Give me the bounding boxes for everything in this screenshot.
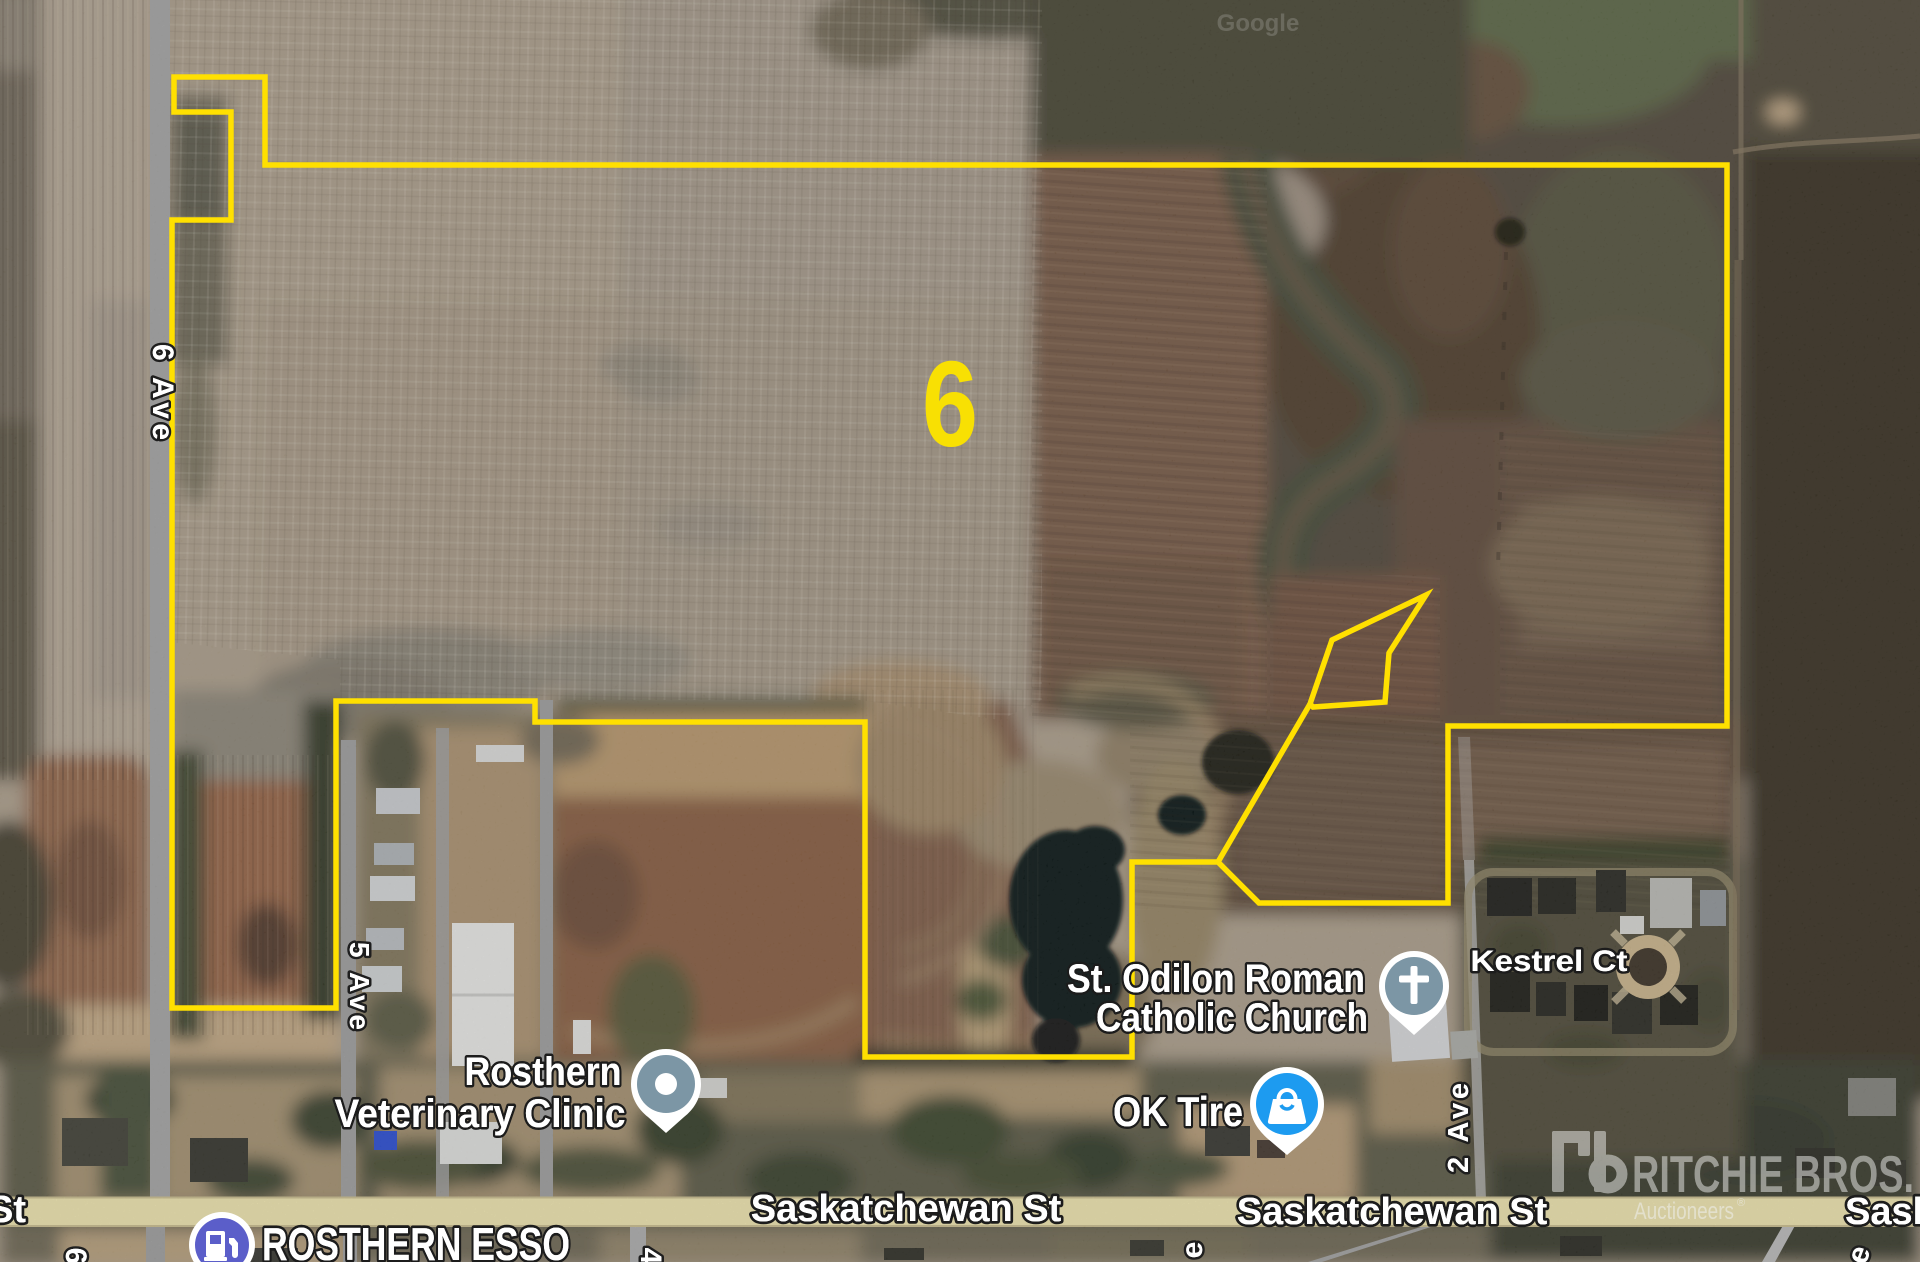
svg-text:Saskatchewan St: Saskatchewan St	[1237, 1191, 1548, 1233]
svg-text:Catholic Church: Catholic Church	[1096, 996, 1368, 1040]
svg-text:2 Ave: 2 Ave	[1443, 1083, 1475, 1173]
svg-text:5 Ave: 5 Ave	[344, 942, 375, 1030]
svg-text:RITCHIE BROS.: RITCHIE BROS.	[1632, 1146, 1914, 1204]
svg-text:®: ®	[1737, 1197, 1745, 1209]
svg-text:Google: Google	[1217, 10, 1300, 37]
svg-text:OK Tire: OK Tire	[1113, 1088, 1243, 1135]
svg-text:e: e	[1176, 1242, 1209, 1259]
svg-text:Auctioneers: Auctioneers	[1634, 1198, 1734, 1225]
svg-text:6: 6	[922, 336, 978, 472]
svg-text:St: St	[0, 1189, 26, 1231]
svg-text:6: 6	[59, 1248, 92, 1262]
svg-text:Veterinary Clinic: Veterinary Clinic	[335, 1092, 626, 1136]
svg-text:Rosthern: Rosthern	[465, 1050, 622, 1094]
svg-text:ROSTHERN ESSO: ROSTHERN ESSO	[262, 1218, 570, 1262]
svg-text:Kestrel Ct: Kestrel Ct	[1471, 945, 1628, 978]
svg-text:4: 4	[634, 1248, 667, 1262]
svg-text:6 Ave: 6 Ave	[146, 344, 179, 440]
svg-text:St. Odilon Roman: St. Odilon Roman	[1067, 957, 1365, 1001]
svg-text:Saskatchewan St: Saskatchewan St	[751, 1188, 1062, 1230]
